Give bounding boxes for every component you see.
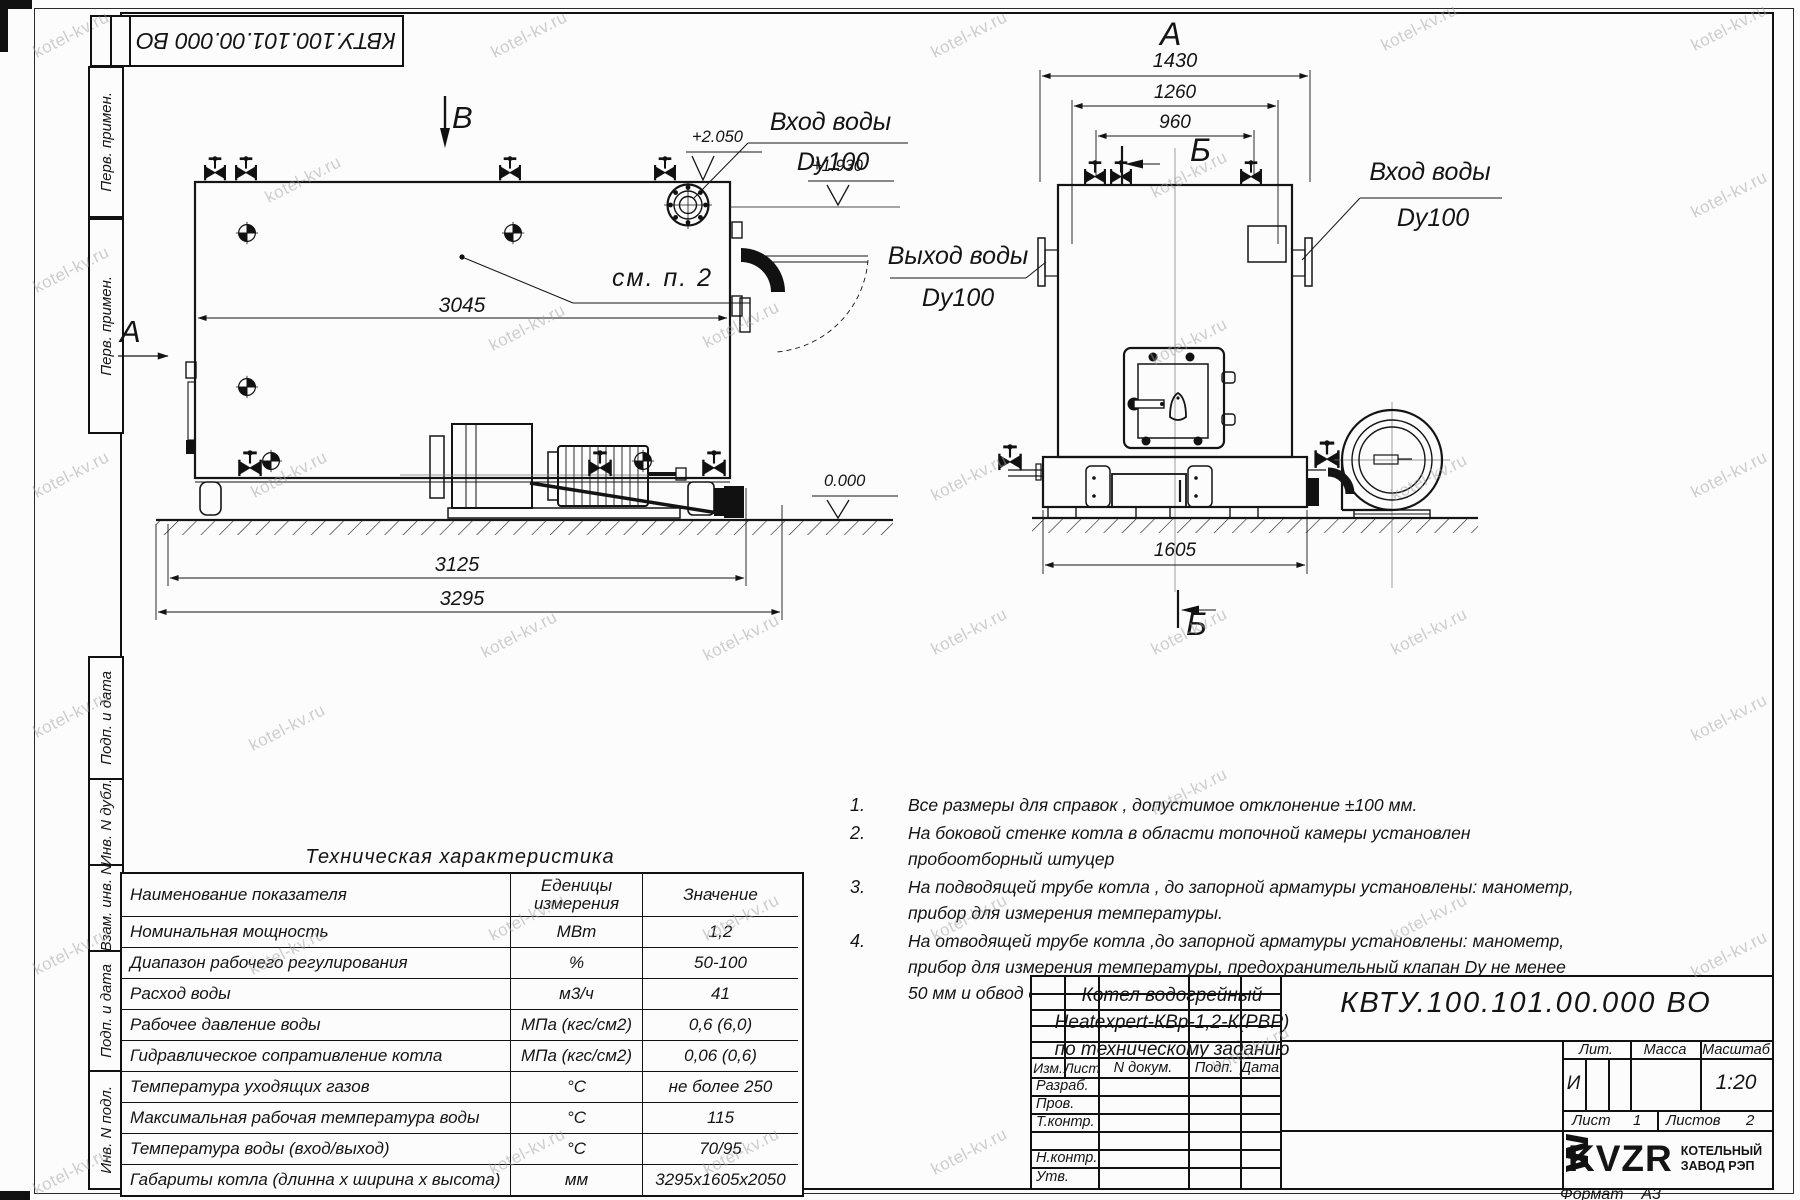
lifting-eye-icon <box>502 222 524 244</box>
side-inlet-label: Вход воды <box>753 108 908 137</box>
doc-designation: КВТУ.100.101.00.000 ВО <box>1280 987 1772 1020</box>
list-value: 1 <box>1633 1112 1641 1129</box>
flue-bracket <box>724 486 744 518</box>
note-item: 3.На подводящей трубе котла , до запорно… <box>850 874 1574 926</box>
dim-960: 960 <box>1125 112 1225 134</box>
valve-icon <box>236 157 256 181</box>
col-podp: Подп. <box>1188 1060 1240 1076</box>
lit-value: И <box>1562 1073 1585 1095</box>
spec-row: Температура воды (вход/выход)°С70/95 <box>122 1133 802 1164</box>
valve-icon <box>500 157 520 181</box>
lifting-eye-icon <box>632 450 654 472</box>
level-0000-text: 0.000 <box>824 472 865 491</box>
motor-body <box>558 446 648 506</box>
dim-1430: 1430 <box>1125 50 1225 73</box>
dim-3125: 3125 <box>407 554 507 577</box>
row-razrab: Разраб. <box>1036 1078 1088 1094</box>
listov-value: 2 <box>1746 1112 1754 1129</box>
col-list: Лист <box>1064 1060 1098 1076</box>
front-inlet-label: Вход воды <box>1355 158 1505 187</box>
fan-housing <box>452 424 532 508</box>
valve-icon <box>1085 161 1105 185</box>
lifting-eye-icon <box>236 376 258 398</box>
valve-icon <box>239 451 260 476</box>
kvzr-logo: KVZR КОТЕЛЬНЫЙ ЗАВОД РЭП <box>1564 1132 1770 1186</box>
callout-text: см. п. 2 <box>575 264 750 293</box>
valve-icon <box>589 451 610 476</box>
listov-label: Листов <box>1666 1112 1721 1129</box>
valve-icon <box>205 157 225 181</box>
spec-row: Температура уходящих газов°Сне более 250 <box>122 1071 802 1102</box>
level-2050 <box>686 152 762 180</box>
section-label-b-top: Б <box>1190 132 1211 169</box>
fan-front-plate <box>430 436 444 498</box>
drawing-sheet: Перв. примен. Перв. примен. Подп. и дата… <box>0 0 1800 1200</box>
dim-1260: 1260 <box>1125 82 1225 104</box>
spec-row: Номинальная мощностьМВт1,2 <box>122 916 802 947</box>
spec-table: Наименование показателя Еденицыизмерения… <box>120 872 804 1197</box>
inlet-nozzle <box>1292 238 1312 286</box>
row-nkontr: Н.контр. <box>1036 1150 1097 1166</box>
note-item: 2.На боковой стенке котла в области топо… <box>850 820 1574 872</box>
row-prov: Пров. <box>1036 1096 1074 1112</box>
masshtab-header: Масштаб <box>1700 1042 1772 1058</box>
spec-row: Габариты котла (длинна х ширина х высота… <box>122 1164 802 1195</box>
side-inlet-dy: Dy100 <box>758 148 908 177</box>
level-2050-text: +2.050 <box>692 128 743 147</box>
lifting-eye-icon <box>260 450 282 472</box>
list-label: Лист <box>1572 1112 1611 1129</box>
title-block: КВТУ.100.101.00.000 ВО Изм. Лист N докум… <box>1030 975 1774 1190</box>
level-0000 <box>812 496 898 518</box>
view-label-a-front: А <box>1160 16 1181 53</box>
front-outlet-label: Выход воды <box>883 242 1033 271</box>
dim-3295: 3295 <box>412 588 512 611</box>
view-label-a-side: А <box>120 314 141 350</box>
col-docum: N докум. <box>1098 1060 1188 1076</box>
section-label-b-bottom: Б <box>1186 606 1207 643</box>
spec-row: Рабочее давление водыМПа (кгс/см2)0,6 (6… <box>122 1009 802 1040</box>
drain-valve-left <box>999 445 1043 480</box>
masshtab-value: 1:20 <box>1700 1071 1772 1095</box>
product-name: Котел водогрейный Heatexpert-КВр-1,2-К(Р… <box>1032 977 1312 1067</box>
col-data: Дата <box>1240 1060 1280 1076</box>
logo-subtext: КОТЕЛЬНЫЙ ЗАВОД РЭП <box>1681 1144 1762 1174</box>
dim-1605: 1605 <box>1125 540 1225 562</box>
blower-fan <box>1334 402 1450 588</box>
spec-table-title: Техническая характеристика <box>120 846 800 869</box>
boiler-body-side <box>195 182 730 478</box>
inlet-leader <box>694 143 748 198</box>
massa-header: Масса <box>1630 1042 1700 1058</box>
motor-base <box>448 508 680 518</box>
level-1930 <box>730 181 900 207</box>
front-inlet-dy: Dy100 <box>1358 204 1508 233</box>
kvzr-logo-icon <box>1564 1132 1590 1172</box>
spec-row: Максимальная рабочая температура воды°С1… <box>122 1102 802 1133</box>
row-utv: Утв. <box>1036 1169 1069 1185</box>
flue-elbow <box>732 222 868 352</box>
lit-header: Лит. <box>1562 1042 1630 1058</box>
valve-icon <box>1241 161 1261 185</box>
spec-header-row: Наименование показателя Еденицыизмерения… <box>122 874 802 916</box>
ground-hatch <box>1032 518 1478 533</box>
format-label: Формат А3 <box>1560 1186 1780 1200</box>
lifting-eye-icon <box>236 222 258 244</box>
water-inlet-flange <box>664 181 712 229</box>
outlet-nozzle <box>1038 238 1058 286</box>
inlet-leader <box>1302 198 1360 260</box>
furnace-door <box>1124 348 1235 448</box>
note-item: 1.Все размеры для справок , допустимое о… <box>850 792 1574 818</box>
dim-3045: 3045 <box>412 294 512 318</box>
row-tkontr: Т.контр. <box>1036 1114 1095 1130</box>
valve-icon <box>703 451 724 476</box>
section-mark-v <box>440 96 450 148</box>
valve-icon <box>655 157 675 181</box>
spec-row: Расход водым3/ч41 <box>122 978 802 1009</box>
front-outlet-dy: Dy100 <box>883 284 1033 313</box>
spec-row: Гидравлическое сопративление котлаМПа (к… <box>122 1040 802 1071</box>
boiler-leg <box>200 482 221 515</box>
inspection-panel <box>1248 226 1286 262</box>
col-izm: Изм. <box>1032 1060 1064 1076</box>
spec-row: Диапазон рабочего регулирования%50-100 <box>122 947 802 978</box>
view-label-v: В <box>452 100 473 136</box>
